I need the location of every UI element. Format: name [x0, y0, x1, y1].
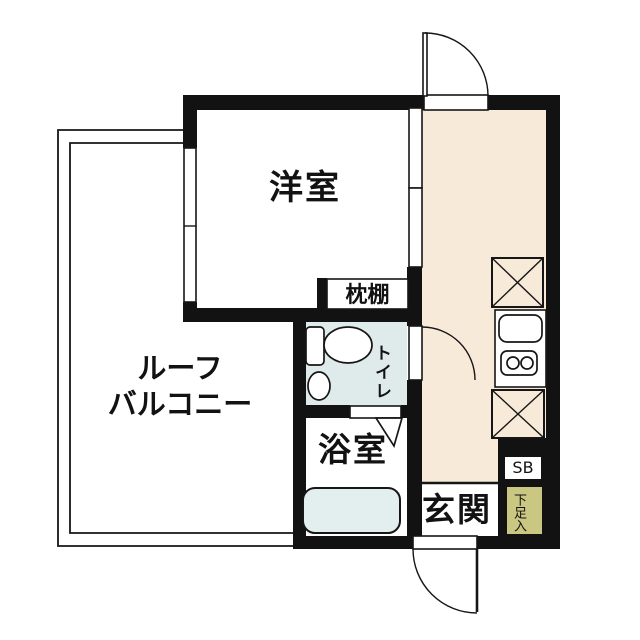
wall-segment [293, 405, 350, 418]
bathtub-icon [303, 488, 400, 533]
hand-basin-icon [308, 372, 330, 400]
label-shoe-storage: 下足入 [512, 489, 525, 535]
window-icon [184, 148, 196, 302]
wall-segment [183, 95, 424, 110]
stove-burner [507, 357, 519, 369]
wall-segment [183, 95, 197, 148]
toilet-bowl-icon [324, 327, 372, 363]
label-western-room: 洋室 [240, 169, 370, 208]
kitchen-sink-icon [499, 315, 542, 342]
label-roof-balcony-line1: ルーフ [90, 352, 270, 385]
wall-segment [407, 267, 422, 326]
wall-segment [293, 536, 413, 549]
label-roof-balcony-line2: バルコニー [90, 388, 270, 421]
wall-segment [317, 278, 327, 312]
label-toilet: トイレ [372, 340, 389, 404]
top-door-leaf [423, 33, 427, 96]
wall-segment [401, 405, 422, 418]
label-bathroom: 浴室 [297, 431, 409, 469]
floor-plan-drawing [0, 0, 640, 640]
top-door-opening [424, 95, 488, 110]
door-swing-arc-icon [425, 33, 488, 96]
entrance-door-opening [413, 536, 477, 549]
toilet-tank [306, 327, 324, 365]
label-pillow-shelf: 枕棚 [327, 283, 408, 308]
label-shoe-box: SB [505, 459, 541, 477]
sliding-door-icon [409, 108, 422, 188]
bathroom-door-opening [350, 406, 401, 418]
stove-burner [521, 357, 533, 369]
sliding-door-icon [409, 188, 422, 267]
door-swing-arc-icon [413, 549, 477, 613]
label-entrance: 玄関 [417, 491, 497, 529]
toilet-door-leaf [409, 326, 422, 380]
floor-plan: 洋室 ルーフ バルコニー 枕棚 トイレ 浴室 玄関 SB 下足入 [0, 0, 640, 640]
